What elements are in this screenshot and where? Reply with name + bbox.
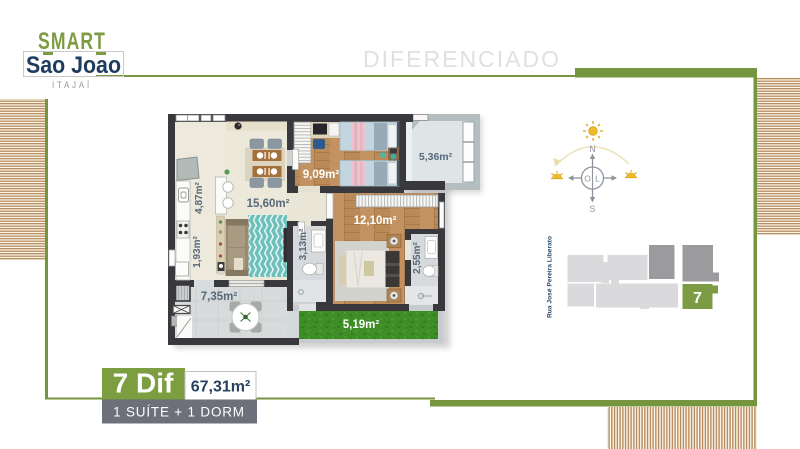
svg-text:DIFERENCIADO: DIFERENCIADO xyxy=(363,46,561,72)
svg-text:7 Dif: 7 Dif xyxy=(113,368,174,399)
svg-text:7: 7 xyxy=(693,290,702,307)
svg-text:S: S xyxy=(589,204,595,214)
svg-text:Rua José Pereira Liberato: Rua José Pereira Liberato xyxy=(548,236,554,318)
svg-text:67,31m²: 67,31m² xyxy=(191,379,251,396)
svg-text:5,19m²: 5,19m² xyxy=(343,319,380,331)
svg-text:3,13m²: 3,13m² xyxy=(298,228,309,260)
svg-text:1,93m²: 1,93m² xyxy=(192,235,203,267)
svg-text:4,87m²: 4,87m² xyxy=(194,181,205,213)
svg-text:L: L xyxy=(595,174,600,184)
svg-text:2,55m²: 2,55m² xyxy=(412,241,423,273)
svg-text:9,09m²: 9,09m² xyxy=(303,169,340,181)
svg-text:15,60m²: 15,60m² xyxy=(247,198,290,210)
svg-text:1 SUÍTE + 1 DORM: 1 SUÍTE + 1 DORM xyxy=(113,405,245,420)
svg-text:12,10m²: 12,10m² xyxy=(354,215,397,227)
svg-text:O: O xyxy=(584,174,591,184)
svg-text:N: N xyxy=(589,144,596,154)
svg-text:Sao Joao: Sao Joao xyxy=(26,52,121,79)
svg-text:7,35m²: 7,35m² xyxy=(201,291,238,303)
svg-text:SMART: SMART xyxy=(38,28,106,55)
svg-text:5,36m²: 5,36m² xyxy=(419,151,453,163)
svg-text:ITAJAÍ: ITAJAÍ xyxy=(52,80,92,90)
